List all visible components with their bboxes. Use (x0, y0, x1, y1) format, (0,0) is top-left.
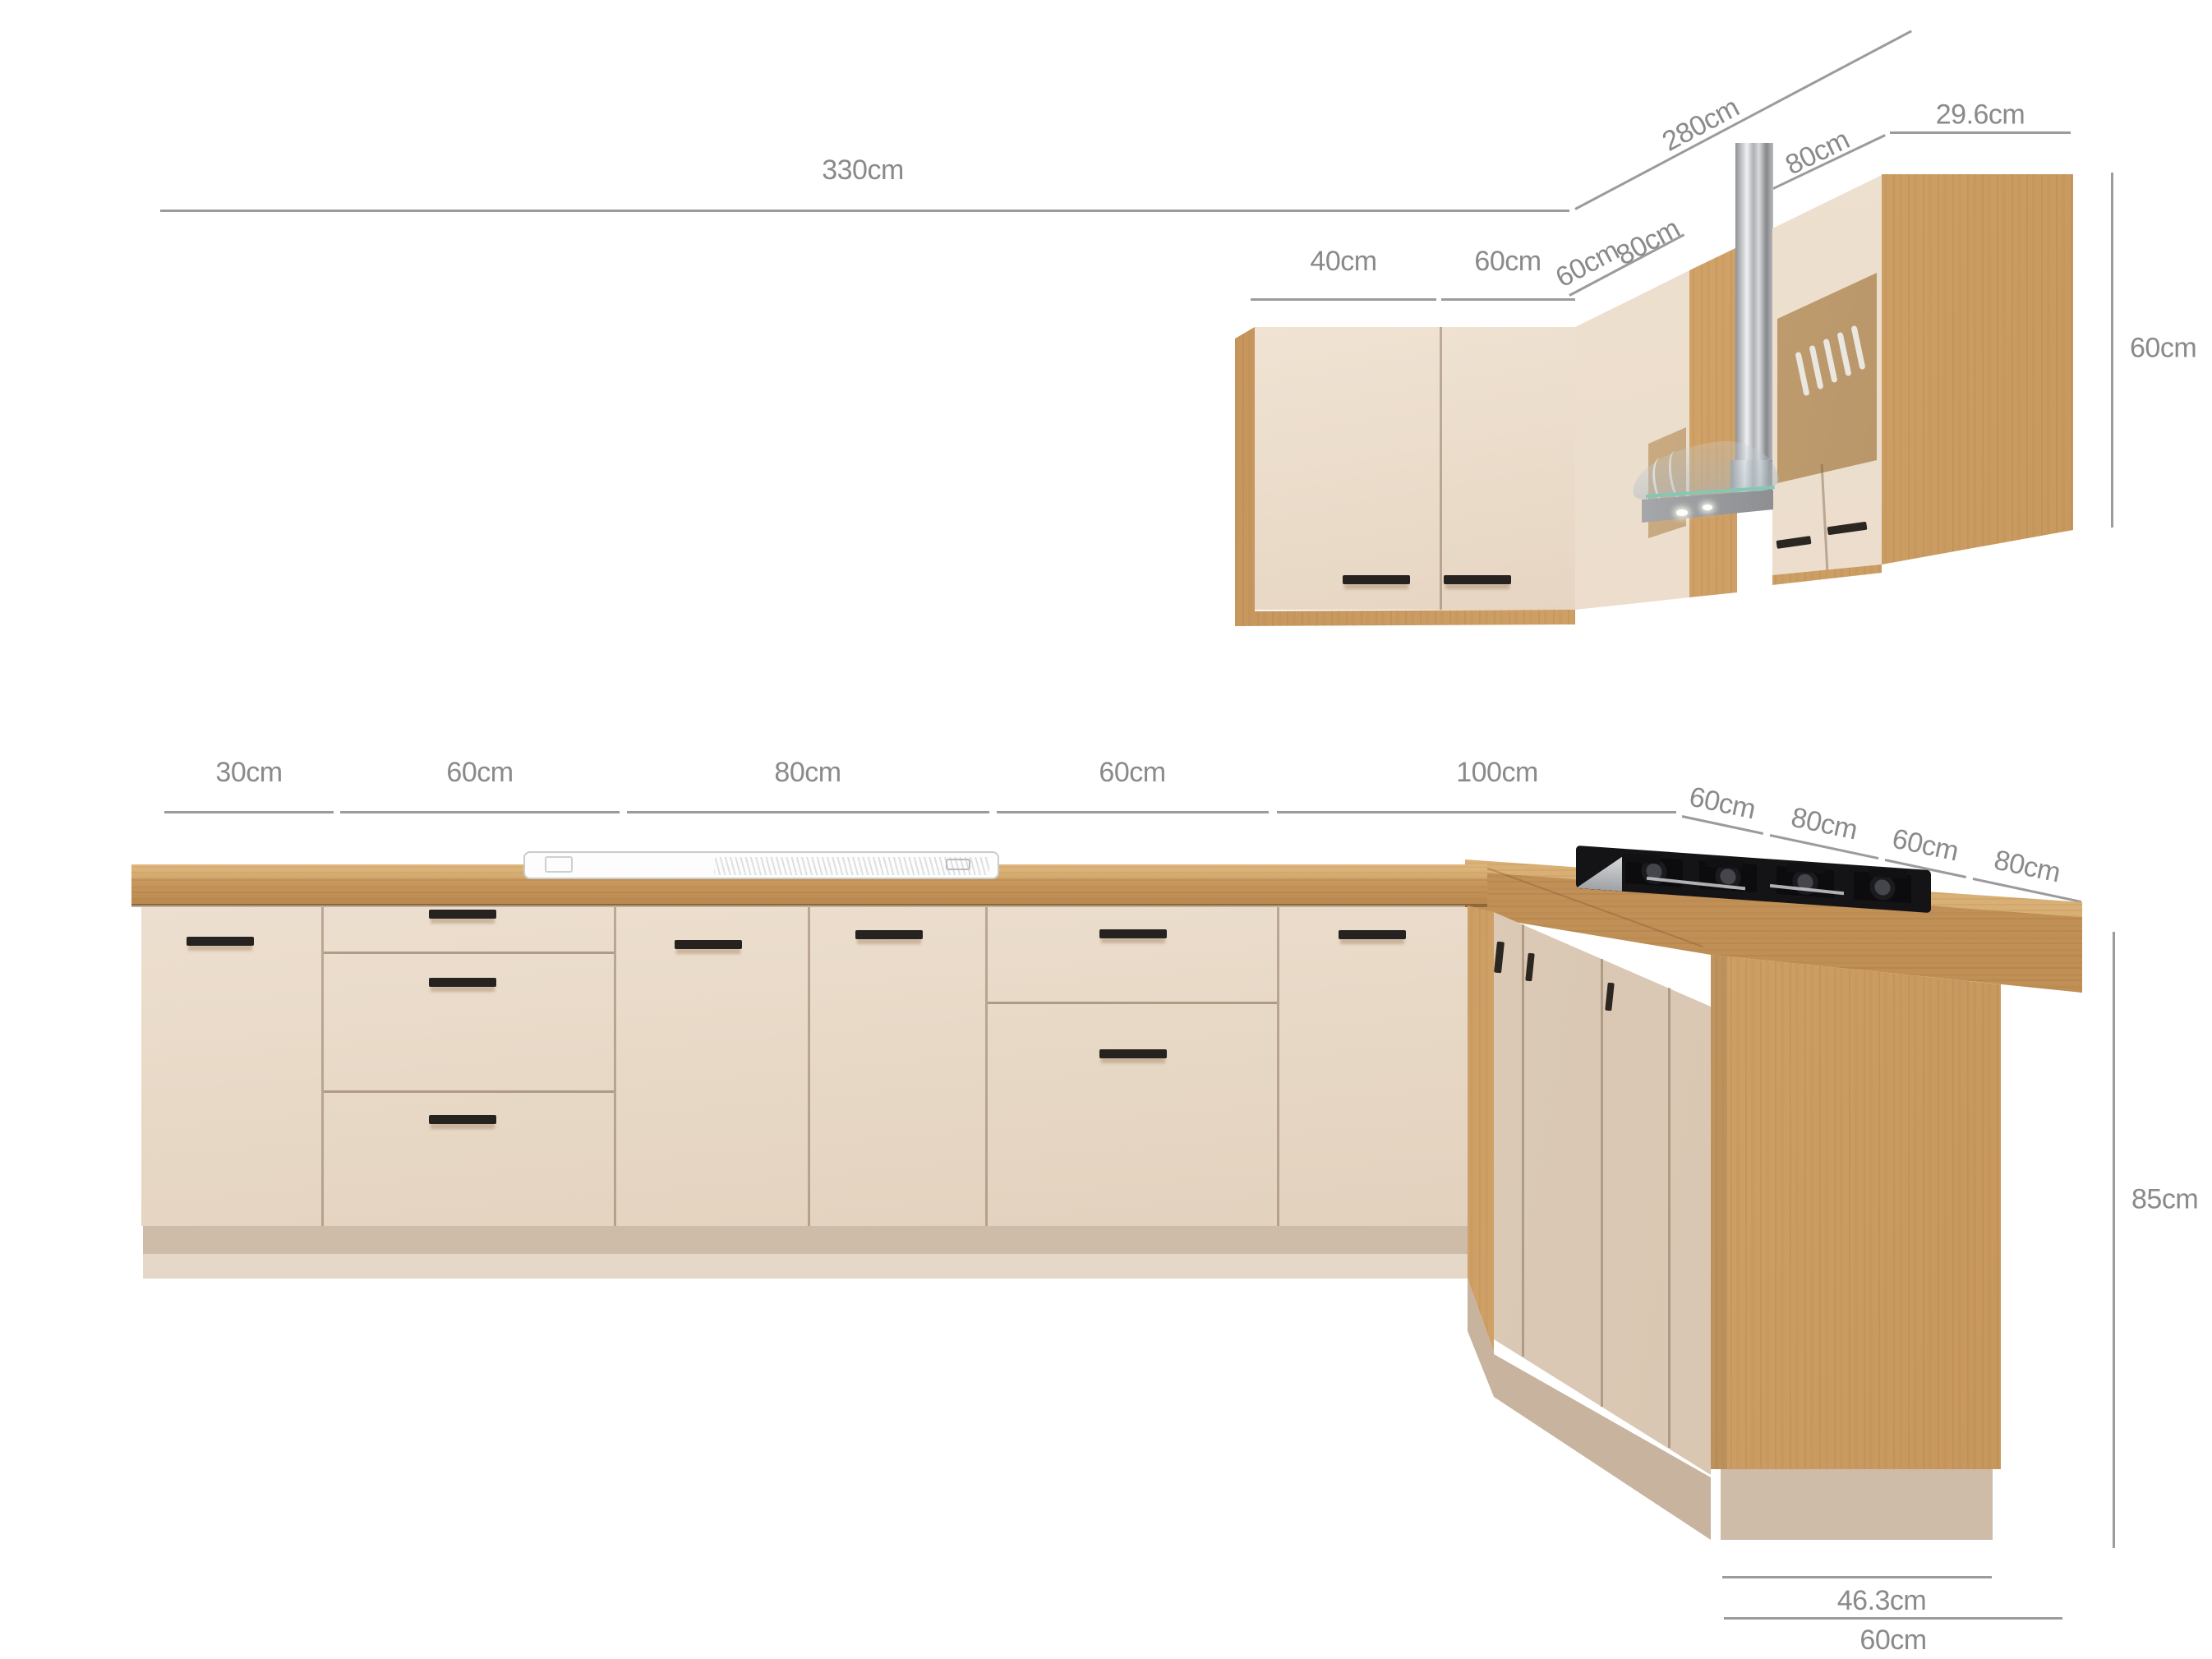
bar-panel-plinth (1721, 1469, 1993, 1540)
base-right-door-gap (1522, 924, 1524, 1357)
base-cabinet-fronts (141, 907, 1468, 1226)
dim-line-bar-depth (1724, 1617, 2062, 1620)
drawer-handle (429, 1115, 496, 1124)
drawer-handle (429, 910, 496, 919)
wall-door-handle (1343, 575, 1410, 584)
dim-line-wall-cab1 (1251, 298, 1436, 301)
base-door-handle (675, 940, 742, 949)
dim-label-wall-end-depth: 29.6cm (1936, 99, 2025, 131)
base-door-handle (1339, 930, 1406, 939)
dim-line-wall-cab2 (1441, 298, 1575, 301)
dim-line-wall-total (160, 210, 1569, 212)
dim-line-base-u4 (997, 811, 1269, 813)
base-door-gap (1277, 907, 1279, 1226)
base-door-handle (187, 937, 254, 946)
hood-light-icon (1676, 509, 1688, 516)
dim-label-base-u3: 80cm (774, 757, 841, 789)
sink-tap-mark (946, 859, 970, 870)
base-door-gap (614, 907, 616, 1226)
drawer-divider (324, 1090, 614, 1093)
dim-label-bar-depth: 60cm (1859, 1624, 1926, 1657)
dim-line-base-u2 (340, 811, 620, 813)
dim-label-wall-total: 330cm (822, 154, 904, 187)
base-right-door-gap (1668, 988, 1671, 1448)
kitchen-dimension-diagram: 330cm 280cm 60cm 80cm 80cm 29.6cm 40cm 6… (0, 0, 2212, 1659)
drawer-handle (1099, 1049, 1167, 1058)
hob-steel-edge (1576, 854, 1622, 892)
dim-label-wall-hood: 80cm (1781, 124, 1855, 182)
dim-label-base-r4: 80cm (1991, 844, 2062, 889)
drawer-handle (429, 978, 496, 987)
dim-line-end-panel-depth (1722, 1576, 1992, 1578)
base-door-handle (855, 930, 923, 939)
dim-line-base-height (2113, 932, 2115, 1548)
dim-label-base-u4: 60cm (1099, 757, 1165, 789)
wall-cabinet-door-gap (1440, 327, 1442, 610)
base-door-gap (985, 907, 988, 1226)
dim-label-base-u1: 30cm (215, 757, 282, 789)
dim-label-base-u5: 100cm (1456, 757, 1538, 789)
base-right-door-gap (1601, 959, 1603, 1407)
dim-label-wall-height: 60cm (2130, 333, 2196, 365)
dim-line-wall-height (2111, 173, 2113, 528)
dim-line-wall-end-depth (1890, 131, 2071, 134)
dim-line-base-u5 (1277, 811, 1676, 813)
built-in-sink (523, 851, 999, 879)
dim-label-wall-corner-b: 80cm (1611, 213, 1685, 273)
dim-label-wall-cab2: 60cm (1474, 246, 1541, 278)
hood-light-icon (1703, 505, 1712, 510)
dim-line-base-u3 (627, 811, 989, 813)
drawer-divider (324, 952, 614, 954)
sink-control-icon (545, 856, 573, 873)
base-door-gap (321, 907, 324, 1226)
dim-label-wall-return: 280cm (1657, 91, 1744, 158)
drawer-handle (1099, 929, 1167, 938)
dim-label-wall-cab1: 40cm (1310, 246, 1376, 278)
plinth (143, 1226, 1468, 1254)
base-door-gap (808, 907, 810, 1226)
dim-label-base-height: 85cm (2131, 1184, 2198, 1216)
wall-door-handle (1444, 575, 1511, 584)
plinth-base-strip (143, 1254, 1468, 1279)
countertop-front (131, 879, 1487, 906)
drawer-divider (988, 1002, 1277, 1004)
dim-line-base-u1 (164, 811, 334, 813)
dim-label-end-panel-depth: 46.3cm (1837, 1585, 1927, 1617)
dim-label-base-u2: 60cm (446, 757, 513, 789)
wall-cabinet-left-doors (1255, 327, 1575, 610)
